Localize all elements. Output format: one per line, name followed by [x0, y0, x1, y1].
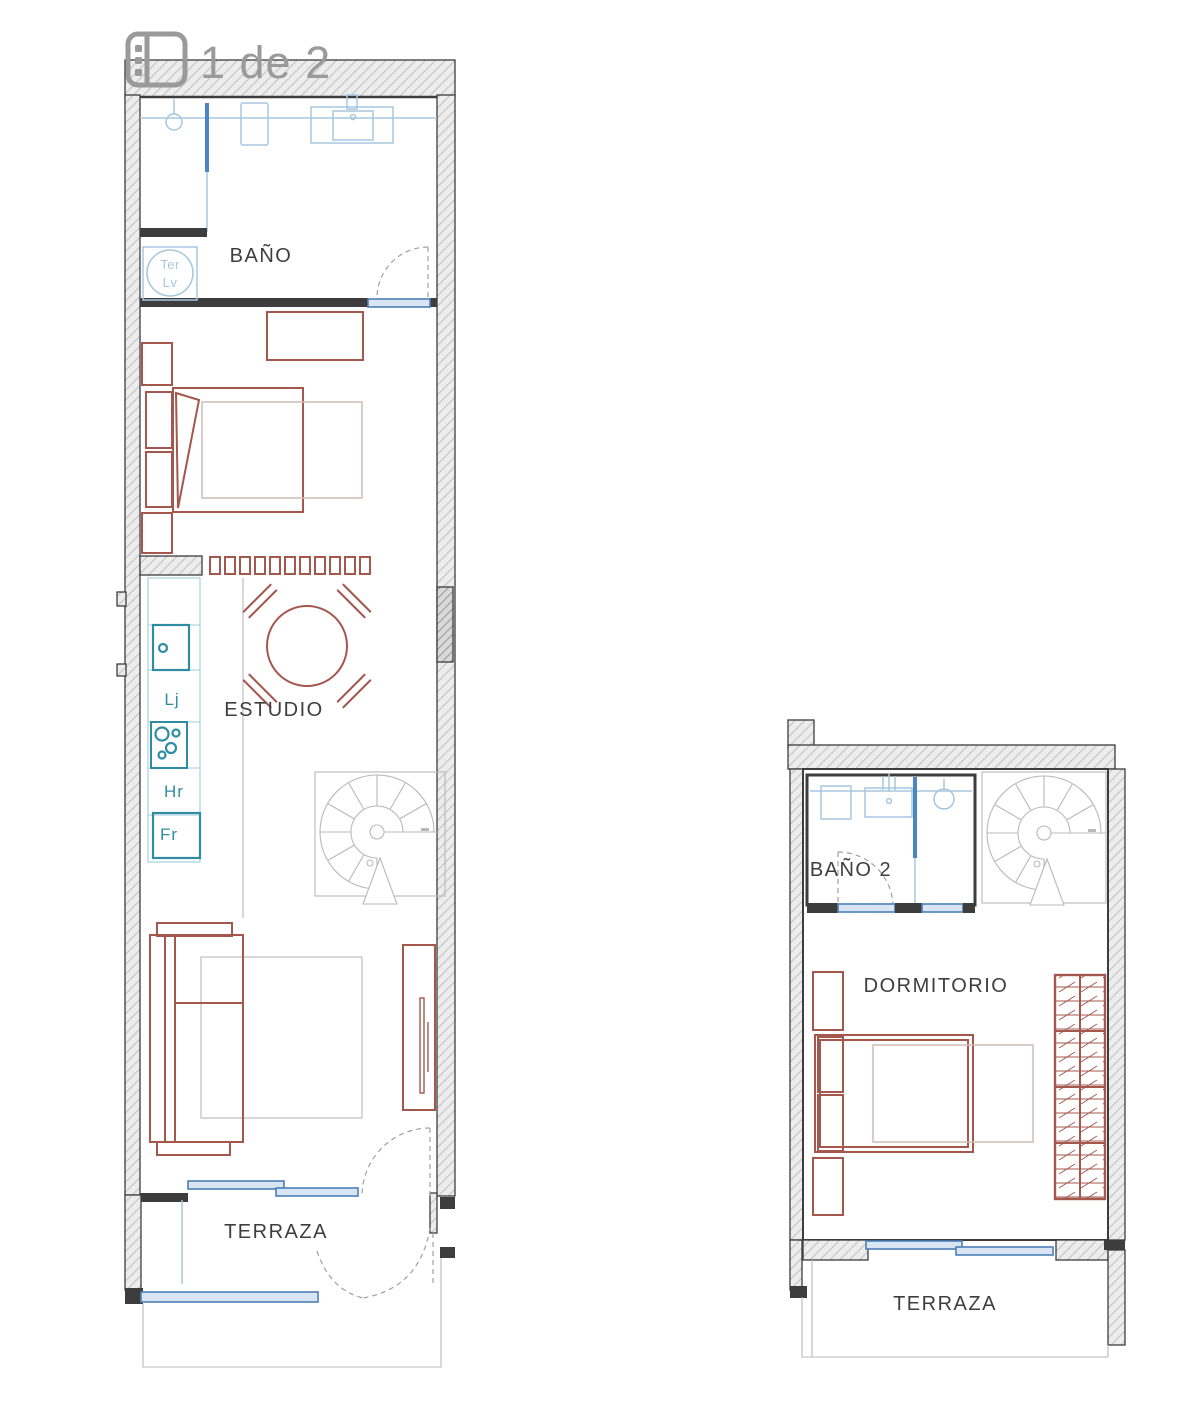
- sliding-window: [956, 1247, 1053, 1255]
- floor-plan-drawing: Ter Lv BAÑO: [0, 0, 1200, 1422]
- floorplan-photo: Ter Lv BAÑO: [0, 0, 1200, 1422]
- fridge-label: Fr: [160, 825, 178, 844]
- room-label-bano2: BAÑO 2: [810, 857, 892, 881]
- room-label-terraza: TERRAZA: [224, 1221, 328, 1243]
- wardrobe-icon: [1055, 975, 1105, 1199]
- room-label-estudio: ESTUDIO: [224, 699, 323, 721]
- oven-label: Hr: [164, 782, 184, 801]
- sliding-window: [188, 1181, 284, 1189]
- washer-label-2: Lv: [163, 275, 178, 290]
- room-label-terraza2: TERRAZA: [893, 1293, 997, 1315]
- gallery-counter: 1 de 2: [200, 37, 331, 88]
- room-label-bano: BAÑO: [230, 243, 293, 267]
- sliding-window: [276, 1188, 358, 1196]
- wall-column-block: [437, 587, 453, 662]
- room-label-dormitorio: DORMITORIO: [864, 975, 1009, 997]
- terrace-railing: [141, 1292, 318, 1302]
- page-background: [0, 0, 1200, 1422]
- sliding-window: [866, 1241, 962, 1249]
- dishwasher-label: Lj: [164, 690, 179, 709]
- bathroom-threshold-glass: [368, 299, 430, 307]
- washer-label-1: Ter: [160, 257, 180, 272]
